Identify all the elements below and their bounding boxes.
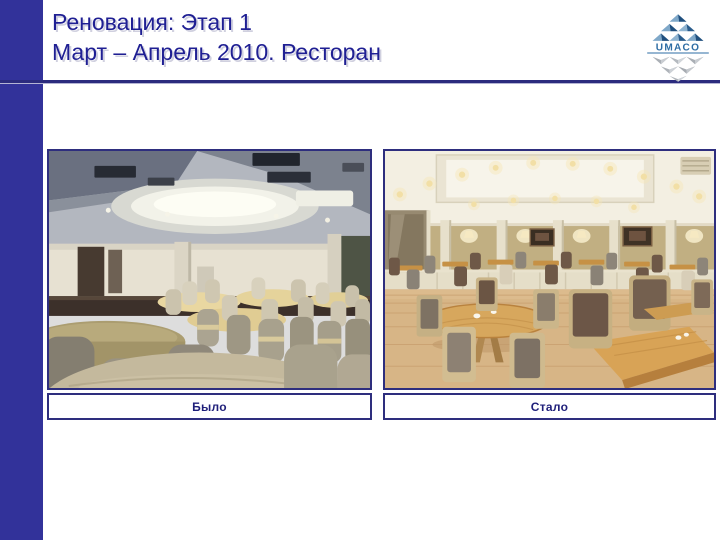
title-underline-shadow bbox=[0, 83, 720, 84]
umaco-logo: UMACO bbox=[644, 10, 712, 80]
umaco-logo-text: UMACO bbox=[656, 42, 700, 53]
title-line-1: Реновация: Этап 1 bbox=[52, 7, 612, 37]
caption-before: Было bbox=[47, 393, 372, 420]
slide-title: Реновация: Этап 1 Март – Апрель 2010. Ре… bbox=[52, 7, 612, 67]
photo-after bbox=[383, 149, 716, 390]
before-photo-illustration bbox=[49, 151, 370, 388]
presentation-slide: Реновация: Этап 1 Март – Апрель 2010. Ре… bbox=[0, 0, 720, 540]
photo-before bbox=[47, 149, 372, 390]
title-line-2: Март – Апрель 2010. Ресторан bbox=[52, 37, 612, 67]
caption-after-label: Стало bbox=[531, 400, 569, 414]
caption-after: Стало bbox=[383, 393, 716, 420]
caption-before-label: Было bbox=[192, 400, 227, 414]
after-photo-illustration bbox=[385, 151, 714, 388]
umaco-logo-icon: UMACO bbox=[644, 10, 712, 82]
